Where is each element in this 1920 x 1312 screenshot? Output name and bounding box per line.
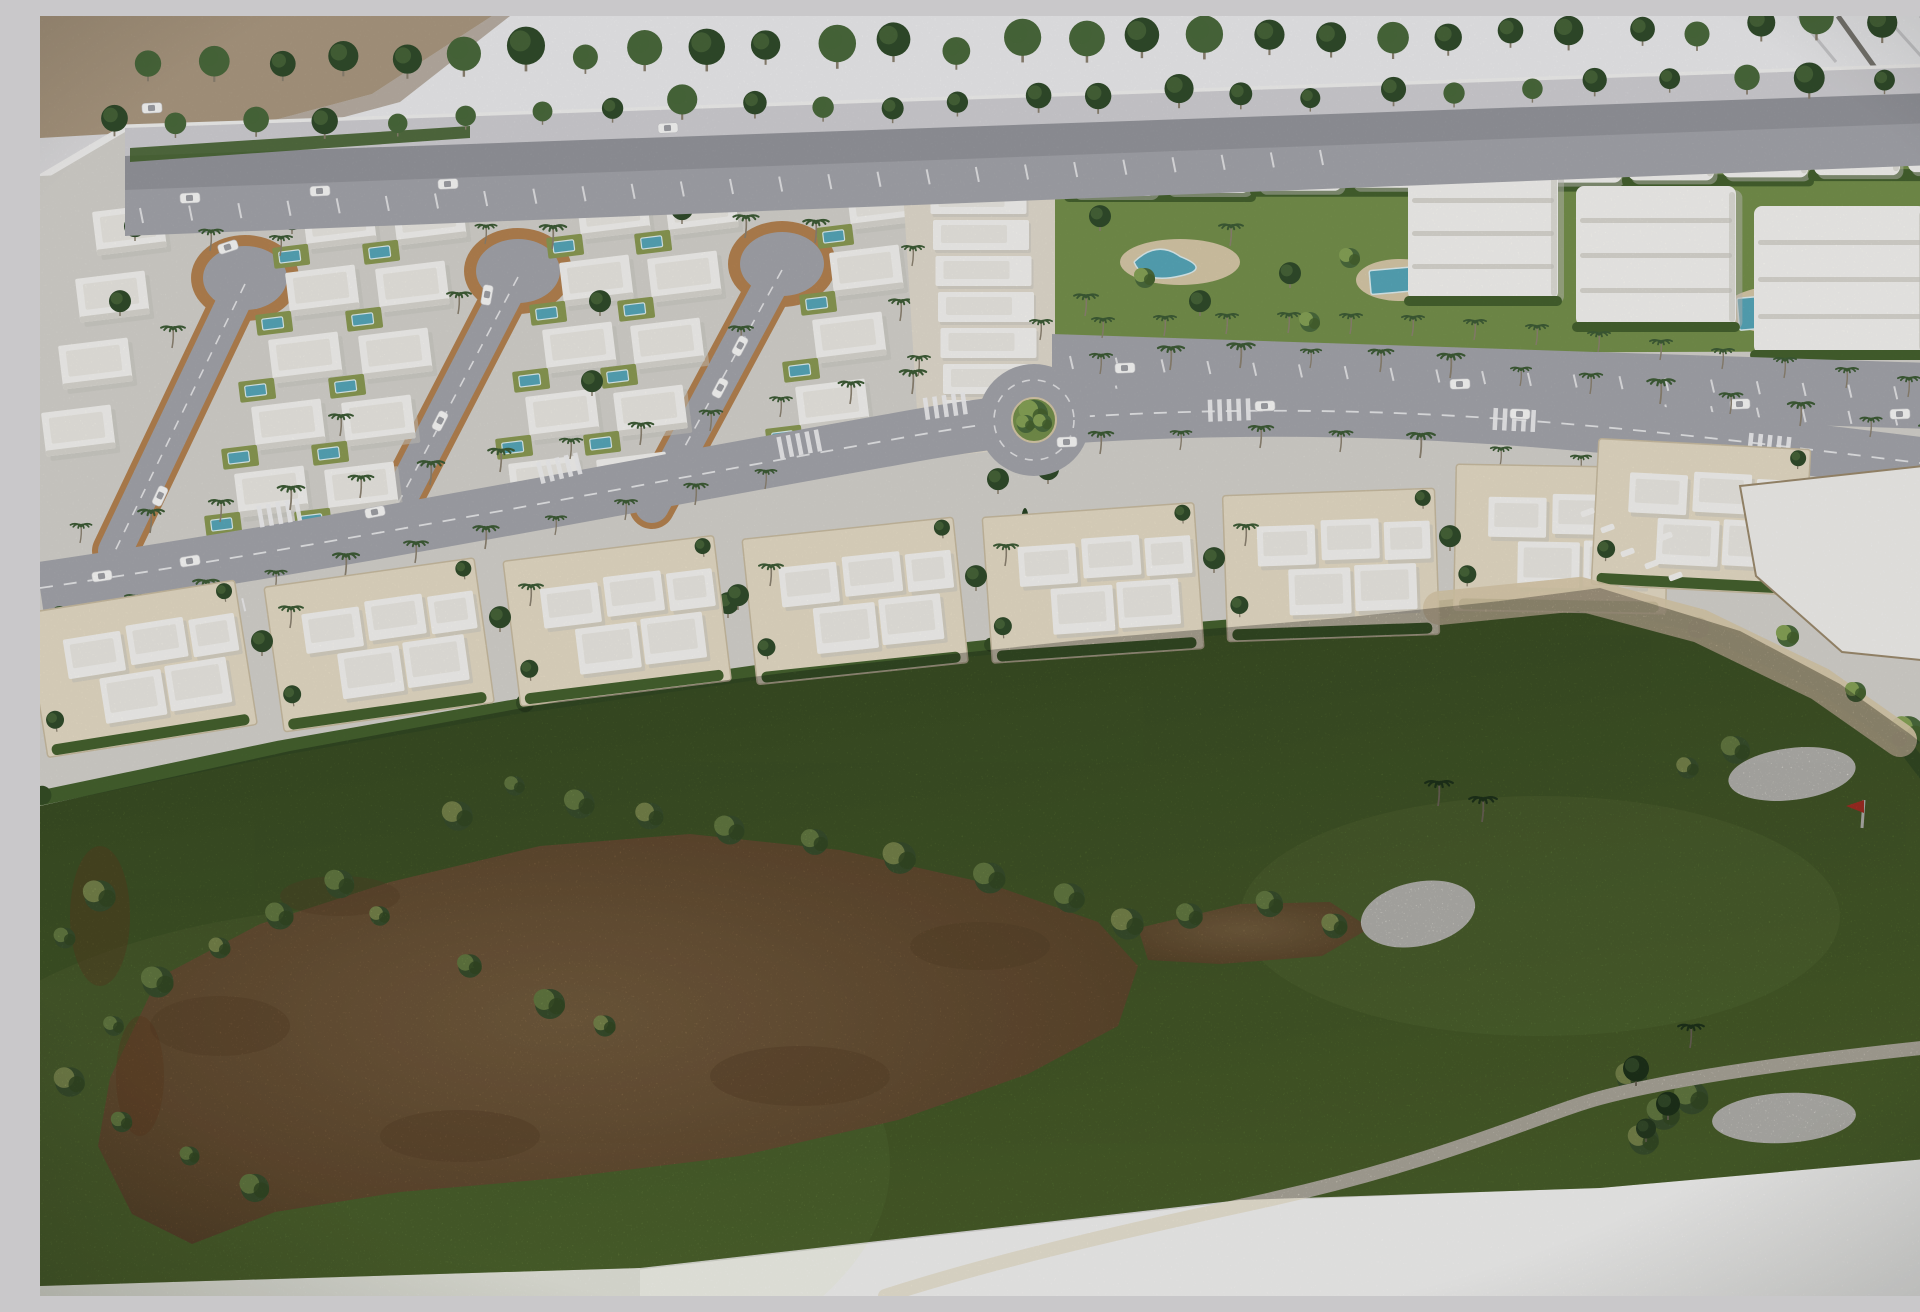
photo-grade: [40, 16, 1920, 1296]
model-scene: [40, 16, 1920, 1296]
scale-model-photo: Photograph of an architectural scale mod…: [40, 16, 1920, 1296]
